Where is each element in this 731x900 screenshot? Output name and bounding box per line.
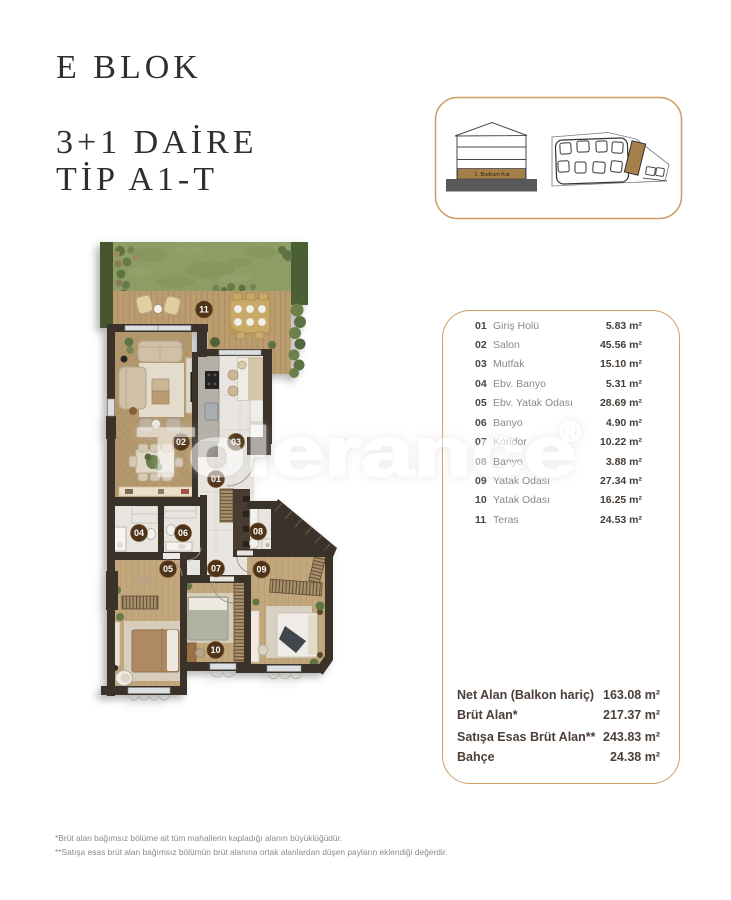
svg-text:07: 07	[211, 564, 221, 574]
svg-text:10: 10	[210, 645, 220, 655]
svg-text:01: 01	[211, 474, 221, 484]
svg-text:06: 06	[178, 528, 188, 538]
svg-text:09: 09	[256, 565, 266, 575]
svg-text:04: 04	[134, 528, 144, 538]
svg-text:08: 08	[253, 527, 263, 537]
svg-text:03: 03	[231, 437, 241, 447]
svg-text:05: 05	[163, 564, 173, 574]
svg-text:02: 02	[176, 437, 186, 447]
svg-text:11: 11	[199, 305, 209, 315]
